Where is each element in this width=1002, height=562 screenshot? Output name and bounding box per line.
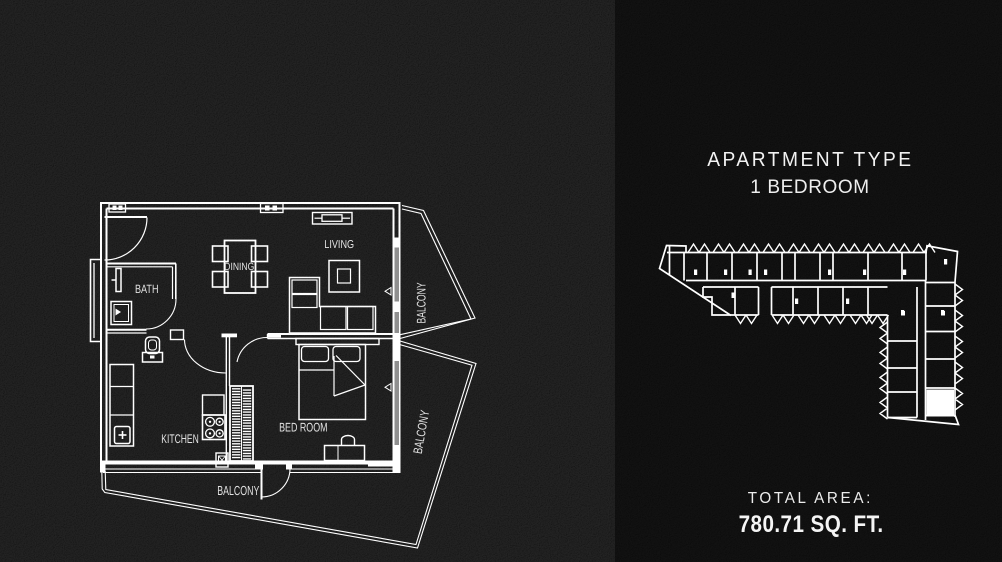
svg-text:BALCONY: BALCONY xyxy=(217,483,259,498)
svg-text:BED ROOM: BED ROOM xyxy=(279,420,327,434)
svg-text:DINING: DINING xyxy=(224,261,254,273)
svg-text:BATH: BATH xyxy=(135,282,159,296)
svg-text:LIVING: LIVING xyxy=(324,239,354,251)
svg-text:BALCONY: BALCONY xyxy=(411,409,433,455)
svg-text:BALCONY: BALCONY xyxy=(415,282,429,323)
svg-text:KITCHEN: KITCHEN xyxy=(161,432,198,446)
